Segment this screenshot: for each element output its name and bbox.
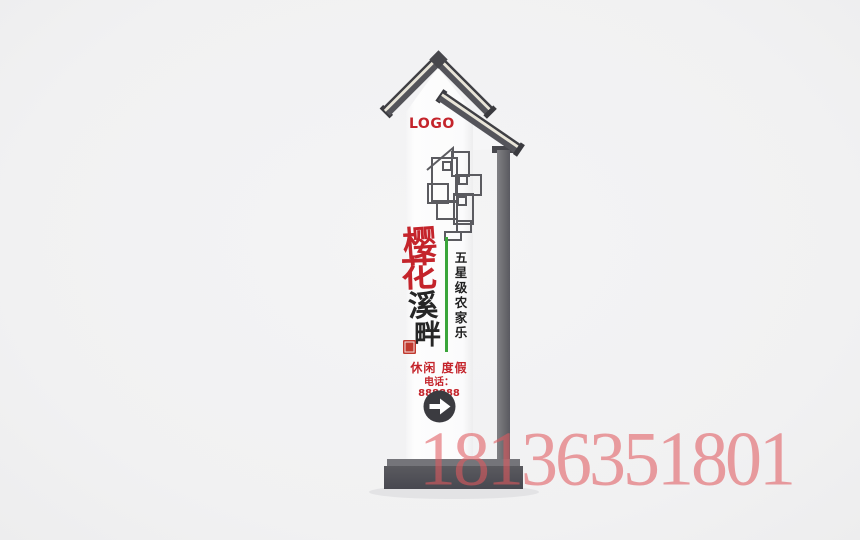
tagline-char: 级: [455, 280, 468, 295]
vertical-divider-line: [445, 237, 448, 352]
brand-char-pan: 畔: [414, 322, 441, 349]
tagline-char: 乐: [455, 325, 468, 340]
logo-text: LOGO: [409, 116, 453, 132]
seal-stamp-icon: [403, 340, 416, 354]
brand-char-xi: 溪: [407, 291, 438, 322]
tagline-char: 五: [455, 250, 468, 265]
tagline-char: 农: [455, 295, 468, 310]
tagline-char: 星: [455, 265, 468, 280]
tagline-char: 家: [455, 310, 468, 325]
tagline-vertical-text: 五 星 级 农 家 乐: [452, 250, 470, 341]
watermark-text: 18136351801: [419, 421, 793, 498]
product-render-stage: LOGO 樱 花 溪 畔 五 星 级 农 家 乐 休闲 度假 电话：888888…: [0, 0, 860, 540]
